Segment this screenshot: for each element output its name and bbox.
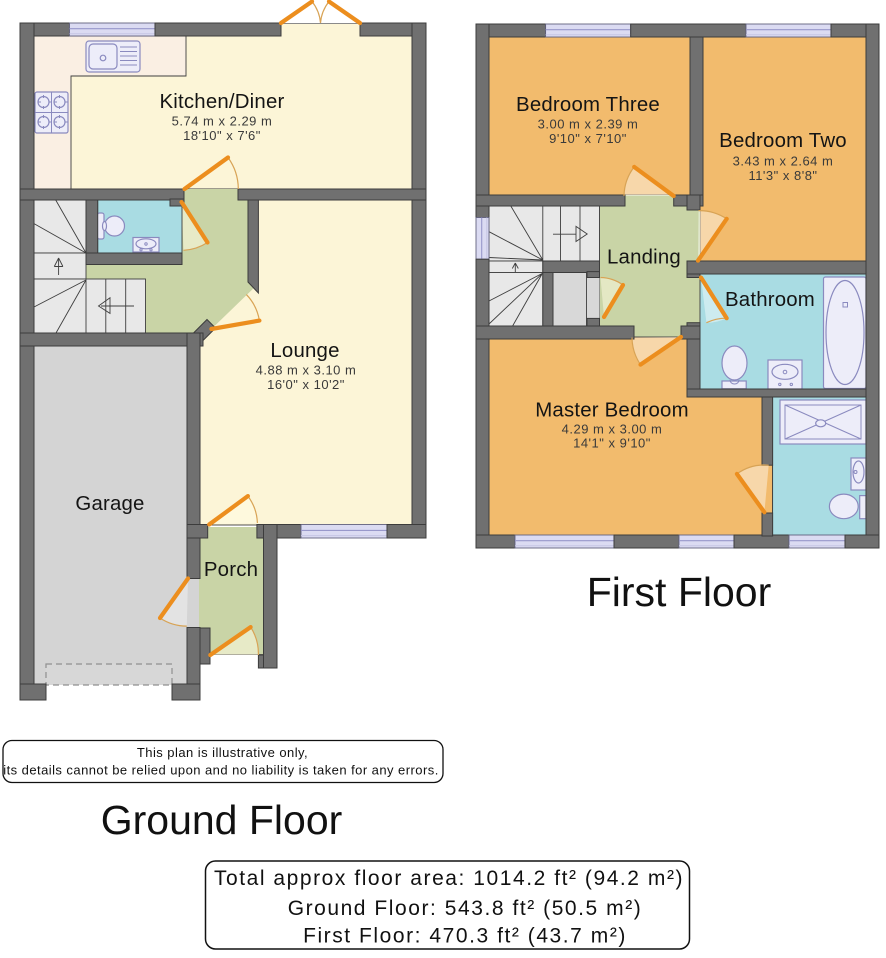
svg-text:First Floor: 470.3 ft² (43.7 m: First Floor: 470.3 ft² (43.7 m²) bbox=[303, 925, 627, 948]
svg-text:Bedroom Two: Bedroom Two bbox=[719, 130, 847, 152]
svg-text:Porch: Porch bbox=[204, 559, 258, 581]
svg-text:Total approx floor area: 1014.: Total approx floor area: 1014.2 ft² (94.… bbox=[214, 867, 684, 890]
svg-text:Bedroom Three: Bedroom Three bbox=[516, 94, 660, 116]
svg-text:3.43 m x 2.64 m: 3.43 m x 2.64 m bbox=[733, 154, 834, 169]
svg-text:Master Bedroom: Master Bedroom bbox=[535, 400, 689, 422]
svg-text:Landing: Landing bbox=[607, 247, 681, 269]
svg-text:5.74 m x 2.29 m: 5.74 m x 2.29 m bbox=[172, 114, 273, 129]
svg-text:This plan is illustrative only: This plan is illustrative only, bbox=[137, 745, 308, 760]
svg-text:Bathroom: Bathroom bbox=[725, 289, 815, 311]
svg-text:Ground Floor: Ground Floor bbox=[101, 797, 343, 843]
svg-text:First Floor: First Floor bbox=[587, 569, 772, 615]
svg-text:4.29 m x 3.00 m: 4.29 m x 3.00 m bbox=[562, 422, 663, 437]
svg-text:4.88 m x 3.10 m: 4.88 m x 3.10 m bbox=[256, 363, 357, 378]
svg-text:Kitchen/Diner: Kitchen/Diner bbox=[159, 91, 284, 113]
svg-text:9'10" x 7'10": 9'10" x 7'10" bbox=[549, 131, 627, 146]
svg-text:11'3" x 8'8": 11'3" x 8'8" bbox=[748, 168, 817, 183]
svg-text:16'0" x 10'2": 16'0" x 10'2" bbox=[267, 377, 345, 392]
svg-text:Garage: Garage bbox=[75, 493, 144, 515]
svg-text:its details cannot be relied u: its details cannot be relied upon and no… bbox=[3, 763, 439, 778]
svg-text:3.00 m x 2.39 m: 3.00 m x 2.39 m bbox=[538, 117, 639, 132]
svg-text:18'10" x 7'6": 18'10" x 7'6" bbox=[183, 128, 261, 143]
svg-text:Lounge: Lounge bbox=[270, 340, 339, 362]
svg-text:14'1" x 9'10": 14'1" x 9'10" bbox=[573, 436, 651, 451]
svg-text:Ground Floor: 543.8 ft² (50.5: Ground Floor: 543.8 ft² (50.5 m²) bbox=[288, 897, 643, 920]
